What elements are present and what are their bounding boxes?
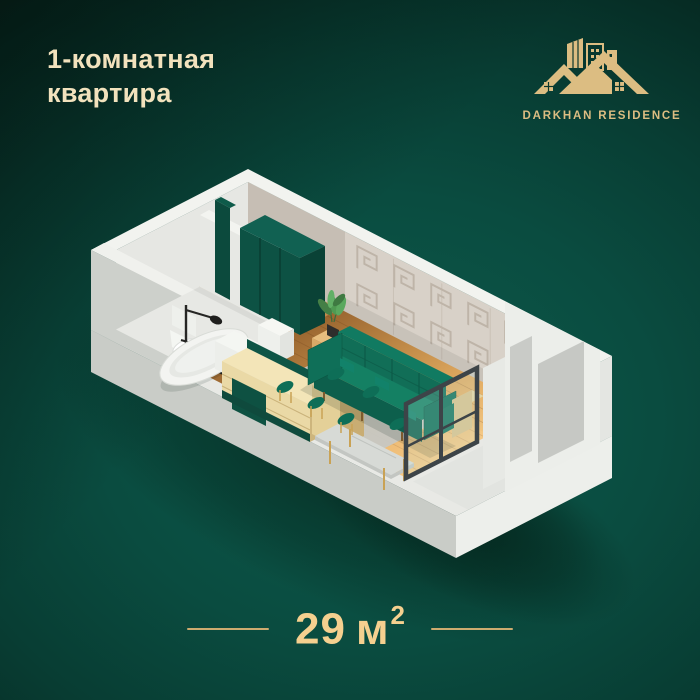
area-superscript: 2: [391, 600, 406, 630]
area-value: 29: [295, 605, 346, 654]
residence-logo-icon: [527, 34, 677, 108]
title-line-1: 1-комнатная: [47, 42, 215, 76]
page-title: 1-комнатная квартира: [47, 42, 215, 110]
tower-icon: [567, 38, 583, 68]
area-divider-left: [187, 628, 269, 630]
area-divider-right: [431, 628, 513, 630]
brand-logo-text: DARKHAN RESIDENCE: [516, 110, 688, 122]
area-unit: м: [356, 605, 390, 654]
area-label: 29м2: [0, 604, 700, 655]
brand-logo: DARKHAN RESIDENCE: [516, 34, 688, 122]
poster: 1-комнатная квартира: [0, 0, 700, 700]
title-line-2: квартира: [47, 76, 215, 110]
area-text: 29м2: [295, 604, 405, 655]
